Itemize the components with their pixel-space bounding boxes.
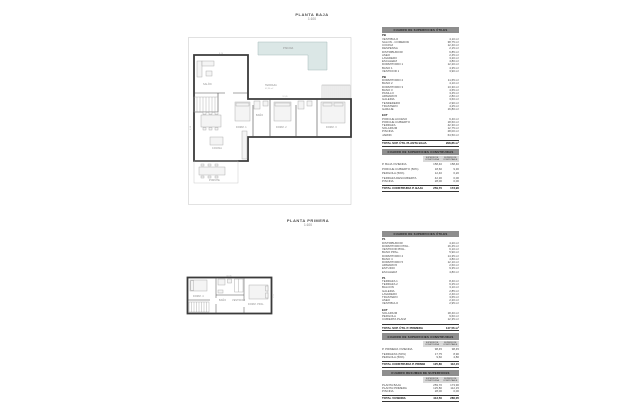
pergola	[322, 85, 350, 99]
total-constructed: 413,50	[425, 396, 442, 400]
total-constructed: 125,80	[425, 362, 442, 366]
group-gap	[382, 306, 459, 308]
dorm3-label: DORM. 3	[326, 126, 337, 129]
row-value: 3,90 m²	[449, 70, 459, 73]
area-row: P. PRIMERA VIVIENDA98,4598,45	[382, 348, 459, 351]
row-value: 16,80 m²	[448, 108, 459, 111]
dorm1-label: DORM. 1	[236, 126, 247, 129]
group-gap	[382, 73, 459, 75]
group-gap	[382, 137, 459, 139]
table-title: CUADRO DE SUPERFICIES CONSTRUIDAS	[382, 149, 459, 155]
row-label: PÉRGOLA (50%)	[382, 356, 425, 359]
row-label: CUBIERTA PLANA	[382, 318, 406, 321]
total-label: TOTAL VIVIENDA	[382, 396, 425, 400]
salon-label: SALÓN	[203, 83, 212, 86]
area-tables-planta-baja: CUADRO DE SUPERFICIES ÚTILESPBVESTÍBULO4…	[382, 27, 459, 192]
column-headers: SUPERFICIE CONSTRUIDASUPERFICIE COMPUTAB…	[382, 341, 459, 347]
row-label: JARDÍN	[382, 134, 392, 137]
total-label: TOTAL CONSTRUIDA P. BAJA	[382, 186, 425, 190]
table-title: CUADRO RESUMEN DE SUPERFICIES	[382, 370, 459, 376]
column-spacer	[382, 377, 423, 383]
row-value: 2,95 m²	[449, 302, 459, 305]
total-value: 147,56 m²	[446, 326, 459, 330]
total-label: TOTAL CONSTRUIDA P. PRIMERA	[382, 362, 425, 366]
total-row: TOTAL SUP. ÚTIL PLANTA BAJA298,86 m²	[382, 140, 459, 147]
total-computable: 173,90	[442, 186, 459, 190]
total-row: TOTAL VIVIENDA413,50286,05	[382, 395, 459, 402]
row-value-constructed: 28,00	[425, 390, 442, 393]
dorm4-label: DORM. 4	[193, 295, 204, 298]
row-label: VESTÍBULO	[382, 302, 398, 305]
svg-text:4,60: 4,60	[273, 293, 275, 298]
row-value-computable: 158,40	[442, 163, 459, 166]
planta-primera-title-block: PLANTA PRIMERA 1:100	[266, 219, 350, 227]
row-value-constructed: 98,45	[425, 348, 442, 351]
pool: PISCINA	[258, 42, 327, 70]
total-computable: 286,05	[442, 396, 459, 400]
table-title: CUADRO DE SUPERFICIES ÚTILES	[382, 231, 459, 237]
row-label: PISCINA	[382, 180, 425, 183]
svg-text:12,45: 12,45	[282, 96, 288, 98]
total-computable: 112,15	[442, 362, 459, 366]
row-label: P. BAJA VIVIENDA	[382, 163, 425, 166]
row-value: 4,80 m²	[449, 271, 459, 274]
cocina-label: COCINA	[212, 147, 222, 150]
area-row: PISCINA28,000,00	[382, 180, 459, 183]
area-row: P. BAJA VIVIENDA158,40158,40	[382, 163, 459, 166]
row-label: ESCALERA	[382, 271, 397, 274]
planta-baja-title-block: PLANTA BAJA 1:100	[270, 13, 354, 21]
area-row: PÉRGOLA (50%)9,604,80	[382, 356, 459, 359]
column-header: SUPERFICIE COMPUTABLE	[441, 377, 459, 383]
row-value: 12,35 m²	[448, 318, 459, 321]
column-headers: SUPERFICIE CONSTRUIDASUPERFICIE COMPUTAB…	[382, 377, 459, 383]
svg-text:10,35: 10,35	[226, 276, 232, 278]
row-value-computable: 6,20	[442, 172, 459, 175]
area-row: PISCINA28,000,00	[382, 390, 459, 393]
row-value-computable: 0,00	[442, 180, 459, 183]
area-row: PÉRGOLA (50%)12,406,20	[382, 172, 459, 175]
row-value-constructed: 9,60	[425, 356, 442, 359]
bano-label: BAÑO	[256, 114, 263, 117]
drawing-sheet: PLANTA BAJA 1:100 PISCINA	[0, 0, 620, 406]
terraza-area: 42,30 m²	[265, 87, 274, 90]
column-headers: SUPERFICIE CONSTRUIDASUPERFICIE COMPUTAB…	[382, 156, 459, 162]
column-spacer	[382, 156, 423, 162]
row-label: GARAJE	[382, 108, 394, 111]
total-row: TOTAL CONSTRUIDA P. BAJA259,70173,90	[382, 185, 459, 192]
area-tables-planta-primera: CUADRO DE SUPERFICIES ÚTILESP1DISTRIBUID…	[382, 231, 459, 402]
group-gap	[382, 274, 459, 276]
plan-scale: 1:100	[266, 224, 350, 228]
row-value-computable: 0,00	[442, 390, 459, 393]
group-gap	[382, 322, 459, 324]
row-label: P. PRIMERA VIVIENDA	[382, 348, 425, 351]
row-value-constructed: 12,40	[425, 172, 442, 175]
total-label: TOTAL SUP. ÚTIL PLANTA BAJA	[382, 141, 427, 145]
table-title: CUADRO DE SUPERFICIES ÚTILES	[382, 27, 459, 33]
total-constructed: 259,70	[425, 186, 442, 190]
total-label: TOTAL SUP. ÚTIL P. PRIMERA	[382, 326, 423, 330]
column-header: SUPERFICIE COMPUTABLE	[441, 341, 459, 347]
row-value-computable: 98,45	[442, 348, 459, 351]
pool-label: PISCINA	[283, 47, 294, 50]
row-label: PÉRGOLA (50%)	[382, 172, 425, 175]
column-header: SUPERFICIE CONSTRUIDA	[423, 341, 441, 347]
column-spacer	[382, 341, 423, 347]
row-value: 64,50 m²	[448, 134, 459, 137]
bano-label: BAÑO	[219, 299, 226, 302]
planta-primera-floor-plan: DORM. 4 BAÑO VESTIDOR DORM. PPAL. 10,35 …	[186, 274, 274, 318]
row-value-constructed: 28,00	[425, 180, 442, 183]
planta-baja-floor-plan: PISCINA	[185, 33, 365, 213]
row-value-constructed: 158,40	[425, 163, 442, 166]
total-row: TOTAL CONSTRUIDA P. PRIMERA125,80112,15	[382, 361, 459, 368]
dorm2-label: DORM. 2	[276, 126, 287, 129]
group-gap	[382, 111, 459, 113]
row-value-computable: 4,80	[442, 356, 459, 359]
plan-scale: 1:100	[270, 18, 354, 22]
row-label: PISCINA	[382, 390, 425, 393]
total-value: 298,86 m²	[446, 141, 459, 145]
column-header: SUPERFICIE CONSTRUIDA	[423, 377, 441, 383]
porche-label: PORCHE	[209, 179, 220, 182]
row-label: VESTIDOR 1	[382, 70, 399, 73]
dorm-ppal-label: DORM. PPAL.	[248, 303, 265, 306]
terraza-label: TERRAZA	[265, 84, 277, 87]
table-title: CUADRO DE SUPERFICIES CONSTRUIDAS	[382, 333, 459, 339]
total-row: TOTAL SUP. ÚTIL P. PRIMERA147,56 m²	[382, 324, 459, 331]
vestidor-label: VESTIDOR	[232, 299, 245, 302]
svg-text:3,50: 3,50	[190, 125, 192, 130]
